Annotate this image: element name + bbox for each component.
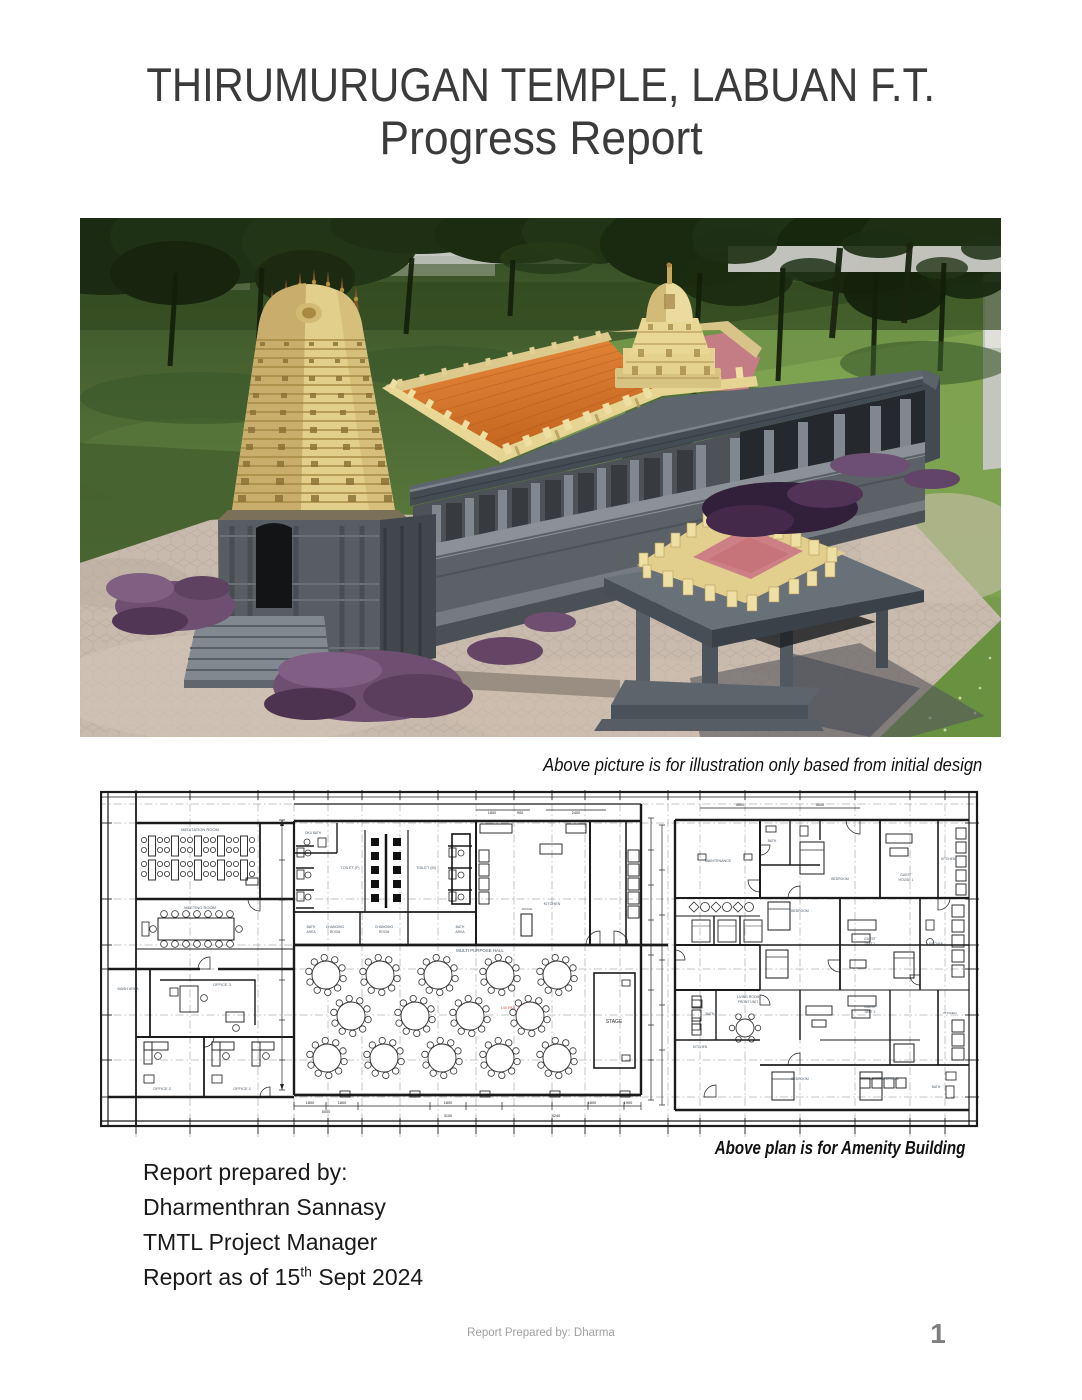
svg-text:5000: 5000 bbox=[322, 1110, 330, 1114]
svg-text:2400: 2400 bbox=[572, 811, 580, 815]
svg-text:OFFICE 3: OFFICE 3 bbox=[213, 982, 232, 987]
svg-text:FRIDGE: FRIDGE bbox=[522, 907, 533, 911]
svg-text:1800: 1800 bbox=[444, 1101, 452, 1105]
svg-text:KITCHEN: KITCHEN bbox=[941, 857, 956, 861]
svg-text:TOILET (F): TOILET (F) bbox=[340, 866, 360, 870]
svg-text:GUEST: GUEST bbox=[900, 873, 912, 877]
svg-text:AREA: AREA bbox=[306, 930, 316, 934]
svg-text:1800: 1800 bbox=[306, 1101, 314, 1105]
svg-text:OFFICE 2: OFFICE 2 bbox=[153, 1086, 172, 1091]
svg-text:1800: 1800 bbox=[338, 1101, 346, 1105]
svg-text:WASH AREA: WASH AREA bbox=[117, 987, 139, 991]
svg-text:ROOM: ROOM bbox=[379, 930, 390, 934]
svg-text:CHANGING: CHANGING bbox=[375, 925, 394, 929]
svg-text:KITCHEN: KITCHEN bbox=[693, 1045, 708, 1049]
svg-text:BATH: BATH bbox=[456, 925, 465, 929]
svg-text:MEDITATION ROOM: MEDITATION ROOM bbox=[181, 827, 219, 832]
svg-text:BATH: BATH bbox=[768, 839, 777, 843]
svg-text:BEDROOM: BEDROOM bbox=[791, 909, 809, 913]
svg-text:CHANGING: CHANGING bbox=[326, 925, 345, 929]
svg-text:4500: 4500 bbox=[736, 803, 744, 807]
svg-text:3100: 3100 bbox=[444, 1114, 452, 1118]
svg-text:1800: 1800 bbox=[488, 811, 496, 815]
svg-text:KITCHEN: KITCHEN bbox=[943, 1011, 956, 1015]
svg-text:LIVING ROOM: LIVING ROOM bbox=[737, 995, 760, 999]
svg-text:BEDROOM: BEDROOM bbox=[831, 877, 849, 881]
svg-text:BATH: BATH bbox=[706, 1012, 715, 1016]
svg-text:FRONT UNIT: FRONT UNIT bbox=[738, 1000, 758, 1004]
svg-text:900: 900 bbox=[517, 811, 523, 815]
svg-text:KITCHEN: KITCHEN bbox=[544, 902, 561, 906]
svg-text:MULTI PURPOSE HALL: MULTI PURPOSE HALL bbox=[456, 948, 504, 953]
svg-text:1800: 1800 bbox=[588, 1101, 596, 1105]
svg-text:OFFICE 1: OFFICE 1 bbox=[233, 1086, 252, 1091]
svg-text:3000: 3000 bbox=[816, 803, 824, 807]
svg-text:AREA: AREA bbox=[455, 930, 465, 934]
svg-text:HOUSE 1: HOUSE 1 bbox=[899, 878, 914, 882]
svg-text:MEETING ROOM: MEETING ROOM bbox=[184, 905, 216, 910]
svg-text:STAGE: STAGE bbox=[606, 1019, 623, 1025]
svg-text:TOILET (M): TOILET (M) bbox=[416, 866, 437, 870]
svg-text:BATH: BATH bbox=[307, 925, 316, 929]
svg-text:1900: 1900 bbox=[624, 1101, 632, 1105]
svg-text:ROOM: ROOM bbox=[330, 930, 341, 934]
svg-text:OKU BATH: OKU BATH bbox=[305, 831, 322, 835]
svg-text:MAINTENANCE: MAINTENANCE bbox=[705, 859, 732, 863]
svg-text:4240: 4240 bbox=[552, 1114, 560, 1118]
svg-text:BATH: BATH bbox=[932, 1085, 941, 1089]
